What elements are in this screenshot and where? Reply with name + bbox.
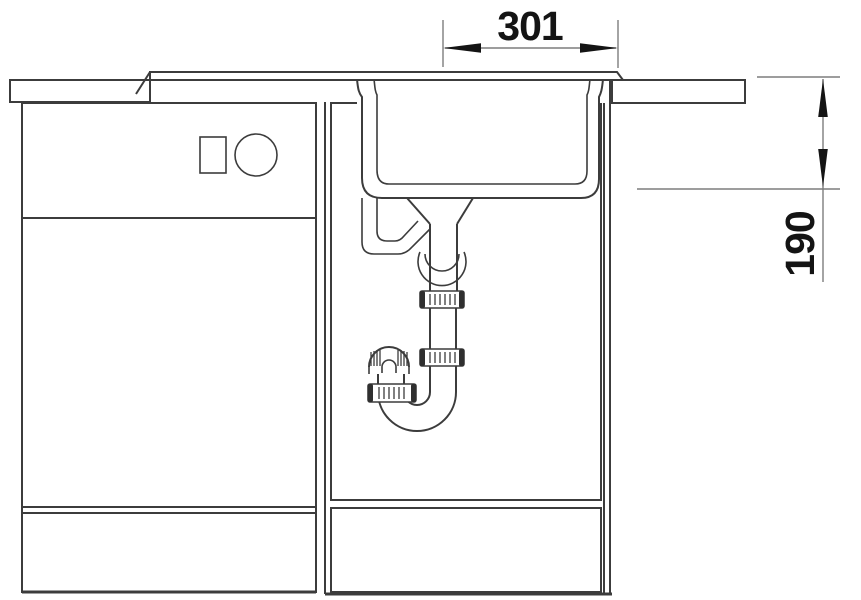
control-display-symbol <box>200 137 226 173</box>
coupling-nut-1 <box>420 291 464 308</box>
dimension-width: 301 <box>443 3 618 68</box>
funnel-right <box>457 198 473 224</box>
depth-arrow-up <box>818 79 828 117</box>
right-cabinet-drawer <box>331 508 601 592</box>
sink-rim <box>150 72 623 80</box>
overflow-outer <box>362 198 430 254</box>
bowl-outer-wall <box>357 79 603 198</box>
coupling-nut-3 <box>368 384 416 402</box>
left-cabinet <box>22 103 316 592</box>
width-arrow-right <box>580 43 618 53</box>
diagram-canvas: 301 190 <box>0 0 861 600</box>
funnel-left <box>407 198 430 224</box>
dimension-width-label: 301 <box>497 3 563 49</box>
right-cabinet <box>325 79 612 594</box>
sink-bowl <box>136 72 623 198</box>
coupling-nut-2 <box>420 349 464 366</box>
countertop-left-slab <box>10 80 150 102</box>
control-knob-symbol <box>235 134 277 176</box>
right-cabinet-compartment <box>331 103 601 500</box>
technical-drawing: 301 190 <box>0 0 861 600</box>
swivel-elbow-outer <box>369 347 409 367</box>
bowl-inner-wall <box>374 79 590 184</box>
left-cabinet-body <box>22 103 316 592</box>
drain-trap <box>362 198 473 431</box>
depth-arrow-down <box>818 149 828 187</box>
width-arrow-left <box>443 43 481 53</box>
dimension-depth-label: 190 <box>777 211 823 277</box>
sink-rim-left-bevel <box>136 72 150 94</box>
dimension-depth: 190 <box>637 77 840 282</box>
countertop-right-slab <box>612 80 745 103</box>
swivel-elbow-inner <box>382 360 396 367</box>
